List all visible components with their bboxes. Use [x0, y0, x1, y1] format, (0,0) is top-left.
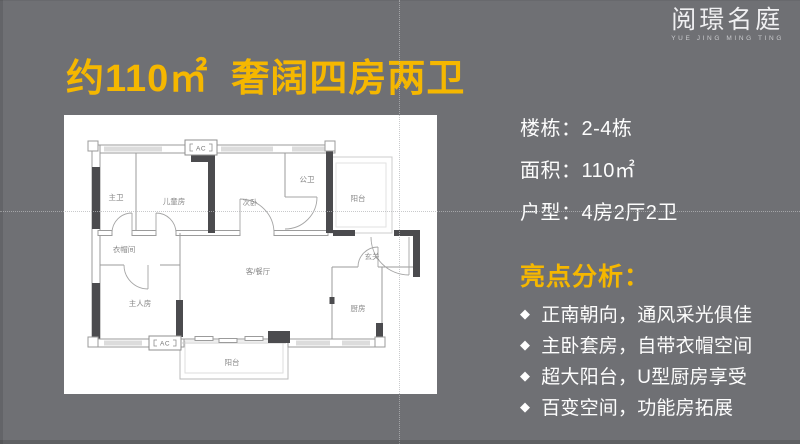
room-label-master-bath: 主卫 — [109, 192, 124, 202]
highlight-text: 百变空间，功能房拓展 — [541, 393, 733, 420]
floor-plan: AC AC 主卫 儿童房 次卧 公卫 阳台 衣帽间 — [64, 115, 437, 394]
room-label-living-dining: 客/餐厅 — [246, 266, 271, 276]
list-item: ◆ 百变空间，功能房拓展 — [520, 391, 752, 422]
room-label-kids-room: 儿童房 — [163, 196, 186, 206]
info-row-building: 楼栋：2-4栋 — [520, 116, 752, 158]
highlights-list: ◆ 正南朝向，通风采光俱佳 ◆ 主卧套房，自带衣帽空间 ◆ 超大阳台，U型厨房享… — [520, 298, 752, 422]
info-value: 2-4栋 — [582, 118, 633, 140]
brand-logo: 阅璟名庭 YUE JING MING TING — [671, 5, 784, 42]
room-label-balcony-top: 阳台 — [351, 193, 366, 203]
highlight-text: 超大阳台，U型厨房享受 — [541, 362, 747, 389]
info-label: 楼栋： — [520, 118, 582, 140]
horizontal-guide-line — [0, 211, 800, 212]
ac-label-top: AC — [196, 146, 206, 153]
brand-logo-name: 阅璟名庭 — [671, 5, 784, 35]
room-label-kitchen: 厨房 — [351, 303, 366, 313]
brand-logo-subtitle: YUE JING MING TING — [671, 35, 784, 42]
info-value: 4房2厅2卫 — [582, 202, 678, 224]
vertical-guide-line — [399, 0, 400, 444]
ac-unit-top: AC — [185, 140, 217, 155]
diamond-bullet-icon: ◆ — [520, 399, 530, 415]
room-label-guest-bath: 公卫 — [300, 175, 315, 184]
info-row-area: 面积：110㎡ — [520, 158, 752, 200]
info-value: 110㎡ — [582, 160, 636, 182]
floor-plan-panel: AC AC 主卫 儿童房 次卧 公卫 阳台 衣帽间 — [64, 115, 437, 394]
ac-label-bottom: AC — [160, 341, 170, 348]
highlights-title: 亮点分析： — [520, 257, 752, 298]
list-item: ◆ 正南朝向，通风采光俱佳 — [520, 298, 752, 329]
diamond-bullet-icon: ◆ — [520, 306, 530, 322]
room-label-second-bedroom: 次卧 — [243, 197, 258, 207]
slide: 约110㎡ 奢阔四房两卫 阅璟名庭 YUE JING MING TING — [0, 0, 800, 444]
page-title: 约110㎡ 奢阔四房两卫 — [66, 47, 465, 102]
list-item: ◆ 主卧套房，自带衣帽空间 — [520, 329, 752, 360]
list-item: ◆ 超大阳台，U型厨房享受 — [520, 360, 752, 391]
highlight-text: 正南朝向，通风采光俱佳 — [541, 300, 752, 327]
info-label: 户型： — [520, 202, 582, 224]
room-label-cloakroom: 衣帽间 — [113, 244, 136, 254]
info-label: 面积： — [520, 160, 582, 182]
highlight-text: 主卧套房，自带衣帽空间 — [541, 331, 752, 358]
info-column: 楼栋：2-4栋 面积：110㎡ 户型：4房2厅2卫 亮点分析： ◆ 正南朝向，通… — [520, 116, 752, 422]
room-label-foyer: 玄关 — [365, 251, 380, 261]
room-label-master-bedroom: 主人房 — [129, 298, 152, 308]
info-row-layout: 户型：4房2厅2卫 — [520, 200, 752, 242]
room-label-balcony-bottom: 阳台 — [225, 357, 240, 367]
ac-unit-bottom: AC — [149, 336, 181, 350]
diamond-bullet-icon: ◆ — [520, 337, 530, 353]
diamond-bullet-icon: ◆ — [520, 368, 530, 384]
